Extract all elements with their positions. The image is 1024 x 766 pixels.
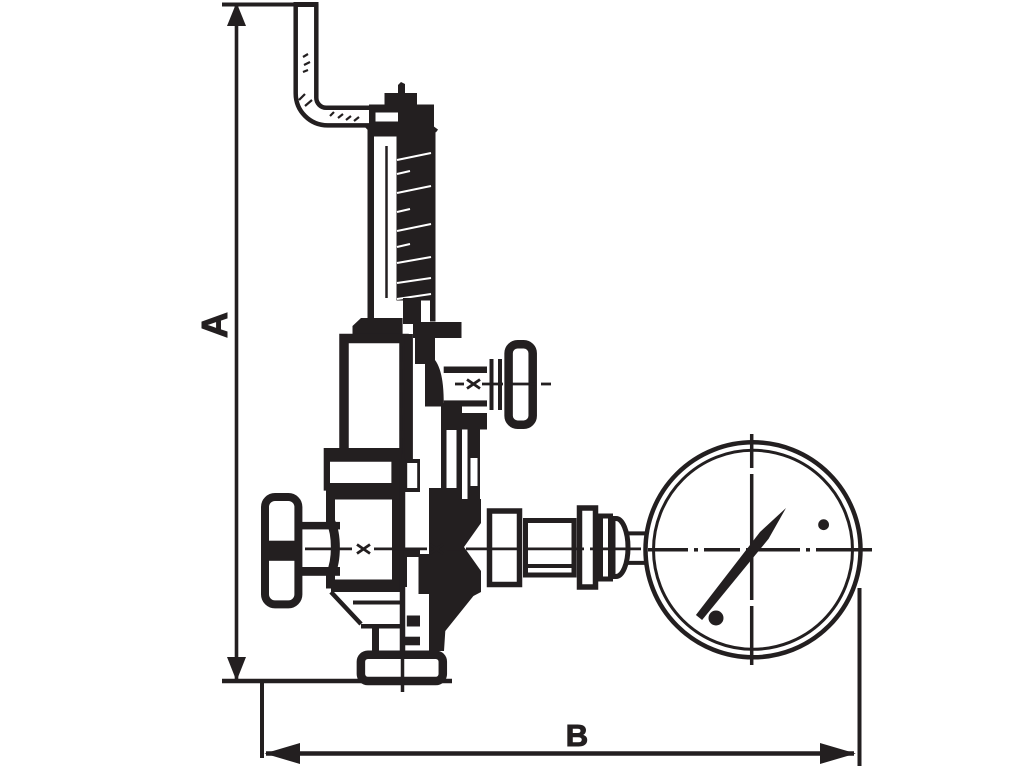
svg-text:B: B xyxy=(566,718,588,753)
svg-text:A: A xyxy=(194,312,235,338)
